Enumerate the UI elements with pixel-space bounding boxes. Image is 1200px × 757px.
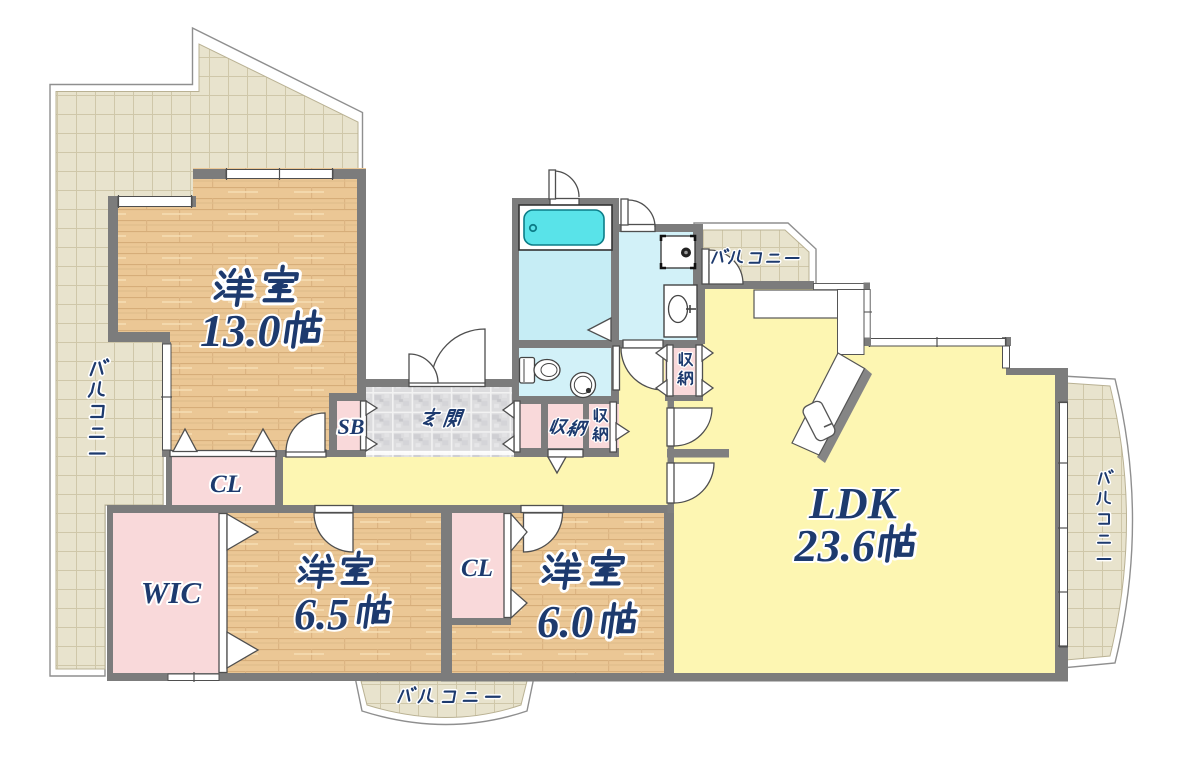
svg-text:SB: SB bbox=[338, 414, 365, 439]
svg-text:WIC: WIC bbox=[141, 575, 202, 610]
svg-text:CL: CL bbox=[461, 555, 493, 582]
svg-text:6.5: 6.5 bbox=[294, 590, 349, 639]
svg-text:CL: CL bbox=[210, 471, 242, 498]
svg-text:6.0: 6.0 bbox=[537, 597, 593, 647]
svg-text:13.0: 13.0 bbox=[200, 305, 281, 356]
svg-text:23.6: 23.6 bbox=[794, 520, 876, 571]
